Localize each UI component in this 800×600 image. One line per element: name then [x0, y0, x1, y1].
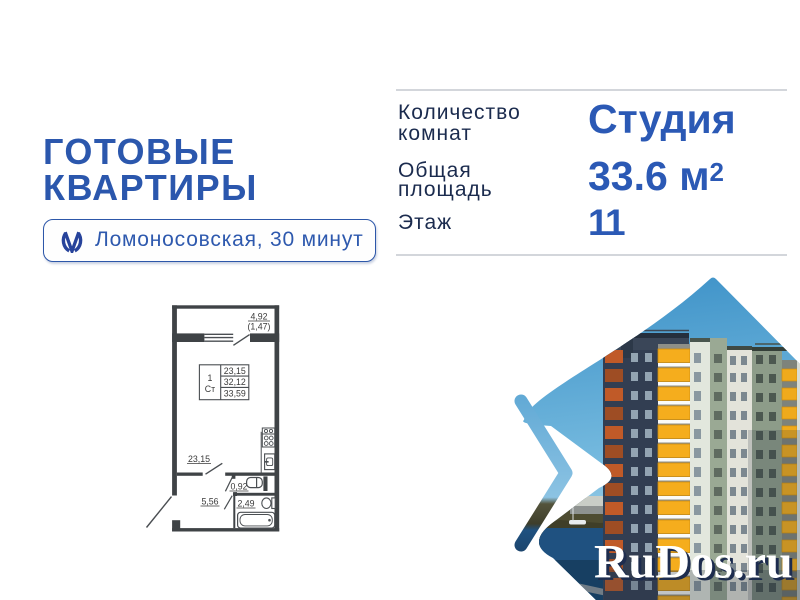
svg-text:RuDos.ru: RuDos.ru	[594, 536, 793, 589]
